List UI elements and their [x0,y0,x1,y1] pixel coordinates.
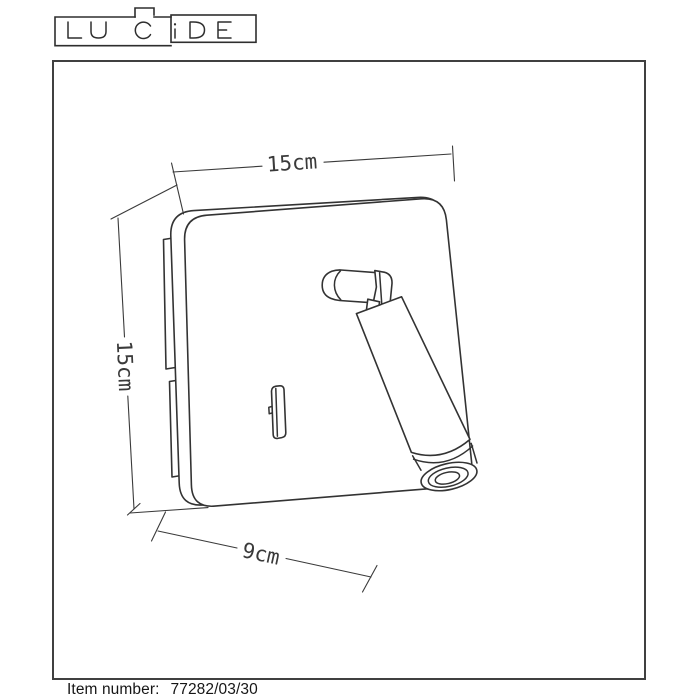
page: 15cm 15cm 9cm Item number:77282/03/30 [0,0,700,700]
dimension-height-label: 15cm [112,340,138,392]
dimension-depth: 9cm [152,512,378,592]
dimension-width-label: 15cm [266,149,318,176]
item-number: Item number:77282/03/30 [67,681,258,699]
dimension-depth-label: 9cm [240,538,282,570]
technical-drawing: 15cm 15cm 9cm [0,0,700,700]
item-number-value: 77282/03/30 [171,681,258,698]
baseline-extension-line [130,508,208,513]
item-number-label: Item number: [67,681,160,698]
